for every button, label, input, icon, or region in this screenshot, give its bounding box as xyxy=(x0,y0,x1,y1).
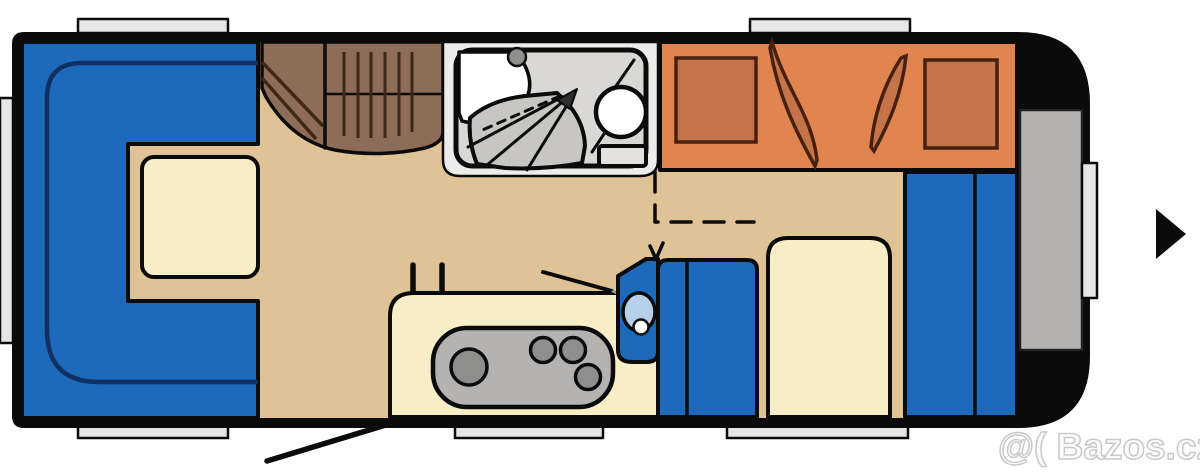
window-top-right xyxy=(750,19,910,33)
basin-drain xyxy=(508,48,526,66)
sink-drain xyxy=(634,320,649,335)
next-arrow-icon[interactable] xyxy=(1156,209,1186,259)
rear-end-panel xyxy=(1020,110,1082,350)
door-swing-line xyxy=(267,424,389,461)
toilet-cassette xyxy=(599,146,646,166)
bed-pillow-right xyxy=(925,60,997,148)
dinette-table xyxy=(142,157,258,277)
dinette-lounge xyxy=(22,42,258,418)
rear-window xyxy=(1082,163,1097,298)
toilet xyxy=(596,87,646,137)
single-bed xyxy=(768,238,890,417)
watermark-text: @( Bazos.cz xyxy=(998,426,1198,470)
caravan-floorplan-image: @( Bazos.cz xyxy=(0,0,1200,473)
floorplan-drawing xyxy=(0,0,1200,473)
bathroom xyxy=(443,42,658,176)
window-top-left xyxy=(78,19,228,33)
window-left xyxy=(0,98,13,343)
rear-wardrobe xyxy=(905,172,1017,417)
fixed-bed xyxy=(660,42,1017,170)
bed-pillow-left xyxy=(676,58,756,142)
fridge-cabinet xyxy=(658,260,757,417)
